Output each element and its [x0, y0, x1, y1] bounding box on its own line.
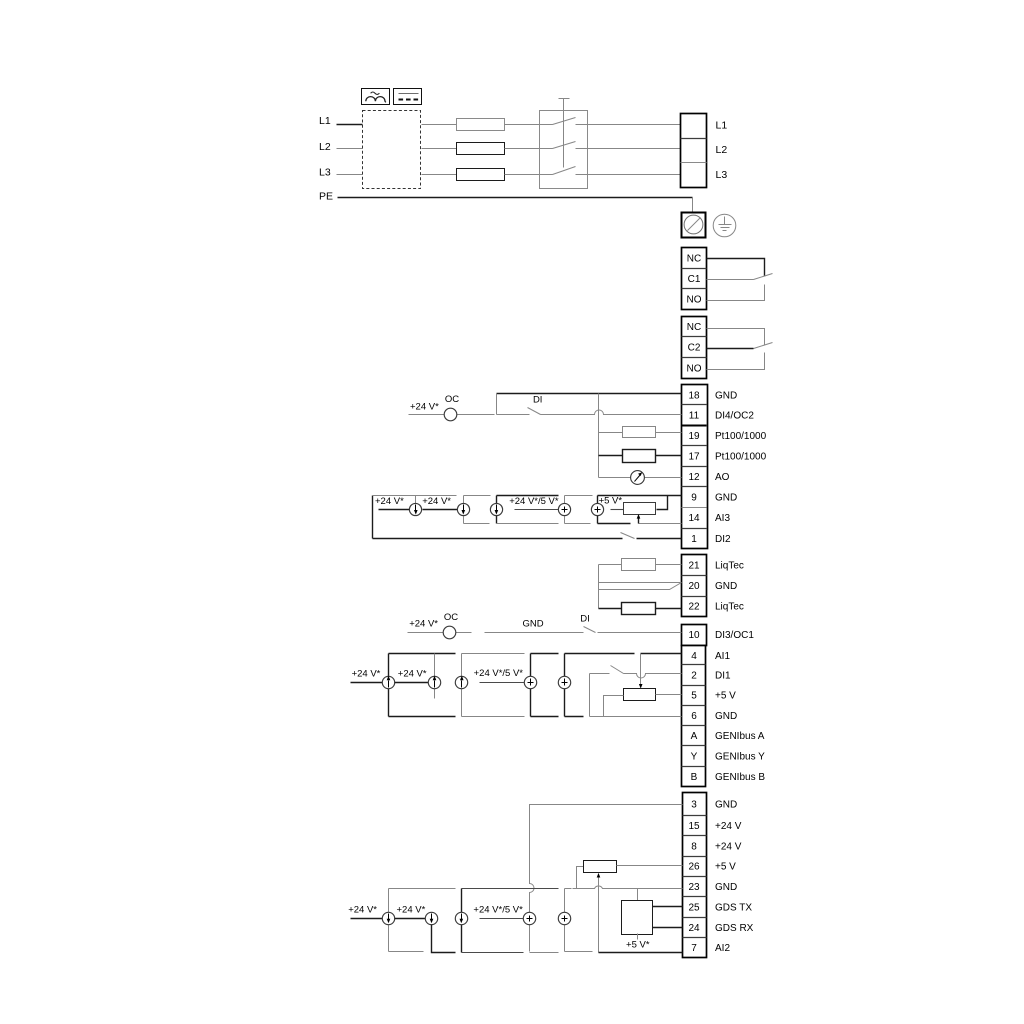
svg-text:2: 2 — [691, 671, 697, 682]
svg-text:15: 15 — [688, 821, 700, 832]
svg-text:NC: NC — [687, 322, 701, 333]
svg-text:+24 V: +24 V — [715, 842, 742, 853]
svg-text:C1: C1 — [688, 274, 701, 285]
svg-text:GDS TX: GDS TX — [715, 903, 752, 914]
svg-text:+24 V*: +24 V* — [398, 669, 427, 680]
svg-text:+24 V*/5 V*: +24 V*/5 V* — [509, 496, 559, 507]
svg-text:+24 V*/5 V*: +24 V*/5 V* — [473, 905, 523, 916]
svg-text:+24 V*: +24 V* — [397, 905, 426, 916]
svg-text:23: 23 — [688, 882, 700, 893]
svg-text:12: 12 — [688, 472, 700, 483]
svg-text:8: 8 — [691, 842, 697, 853]
svg-text:+5 V*: +5 V* — [626, 939, 650, 950]
svg-text:GND: GND — [715, 800, 737, 811]
svg-text:Pt100/1000: Pt100/1000 — [715, 452, 767, 463]
svg-text:1: 1 — [691, 534, 697, 545]
svg-text:24: 24 — [688, 923, 700, 934]
svg-text:GND: GND — [522, 619, 543, 630]
svg-text:4: 4 — [691, 651, 697, 662]
svg-text:L2: L2 — [319, 141, 331, 153]
svg-text:GND: GND — [715, 390, 737, 401]
svg-text:10: 10 — [688, 630, 700, 641]
svg-text:20: 20 — [688, 581, 700, 592]
svg-text:GDS RX: GDS RX — [715, 923, 754, 934]
svg-text:GND: GND — [715, 581, 737, 592]
svg-text:18: 18 — [688, 390, 700, 401]
svg-text:L3: L3 — [716, 169, 728, 181]
svg-text:NO: NO — [687, 363, 702, 374]
svg-text:25: 25 — [688, 903, 700, 914]
svg-text:NO: NO — [687, 295, 702, 306]
svg-text:+24 V: +24 V — [715, 821, 742, 832]
svg-text:AI2: AI2 — [715, 943, 730, 954]
svg-text:GENIbus A: GENIbus A — [715, 731, 765, 742]
svg-text:AO: AO — [715, 472, 730, 483]
svg-text:5: 5 — [691, 691, 697, 702]
svg-text:L1: L1 — [319, 115, 331, 127]
svg-text:DI: DI — [533, 394, 543, 405]
svg-text:PE: PE — [319, 191, 333, 203]
svg-text:LiqTec: LiqTec — [715, 602, 744, 613]
svg-text:GND: GND — [715, 711, 737, 722]
svg-text:14: 14 — [688, 513, 700, 524]
svg-text:DI1: DI1 — [715, 671, 731, 682]
svg-text:LiqTec: LiqTec — [715, 560, 744, 571]
svg-text:+24 V*: +24 V* — [352, 669, 381, 680]
svg-text:Y: Y — [691, 752, 698, 763]
svg-text:NC: NC — [687, 253, 701, 264]
svg-text:6: 6 — [691, 711, 697, 722]
svg-text:+24 V*/5 V*: +24 V*/5 V* — [474, 668, 524, 679]
svg-text:+24 V*: +24 V* — [409, 619, 438, 630]
svg-text:7: 7 — [691, 943, 697, 954]
svg-text:26: 26 — [688, 862, 700, 873]
svg-text:+24 V*: +24 V* — [375, 496, 404, 507]
svg-text:17: 17 — [688, 452, 700, 463]
svg-text:22: 22 — [688, 602, 700, 613]
svg-text:Pt100/1000: Pt100/1000 — [715, 431, 767, 442]
svg-text:+5 V: +5 V — [715, 862, 736, 873]
svg-text:DI4/OC2: DI4/OC2 — [715, 411, 754, 422]
svg-text:L1: L1 — [716, 120, 728, 132]
svg-text:DI3/OC1: DI3/OC1 — [715, 630, 754, 641]
svg-text:GENIbus B: GENIbus B — [715, 772, 765, 783]
svg-text:11: 11 — [689, 411, 700, 422]
svg-text:9: 9 — [691, 493, 697, 504]
svg-text:+5 V: +5 V — [715, 691, 736, 702]
svg-text:OC: OC — [445, 394, 459, 405]
svg-text:A: A — [691, 731, 698, 742]
svg-text:+5 V*: +5 V* — [599, 496, 623, 507]
svg-text:GENIbus Y: GENIbus Y — [715, 752, 765, 763]
svg-text:GND: GND — [715, 882, 737, 893]
svg-text:21: 21 — [688, 560, 700, 571]
svg-text:+24 V*: +24 V* — [410, 402, 439, 413]
svg-text:L3: L3 — [319, 166, 331, 178]
svg-text:AI3: AI3 — [715, 513, 730, 524]
svg-text:19: 19 — [688, 431, 700, 442]
svg-text:L2: L2 — [716, 144, 728, 156]
svg-text:+24 V*: +24 V* — [348, 905, 377, 916]
svg-text:3: 3 — [691, 800, 697, 811]
svg-text:DI2: DI2 — [715, 534, 731, 545]
svg-text:B: B — [691, 772, 698, 783]
svg-text:AI1: AI1 — [715, 651, 730, 662]
svg-text:GND: GND — [715, 493, 737, 504]
svg-text:C2: C2 — [688, 343, 701, 354]
svg-text:+24 V*: +24 V* — [422, 496, 451, 507]
svg-text:DI: DI — [580, 614, 590, 625]
svg-text:OC: OC — [444, 612, 458, 623]
